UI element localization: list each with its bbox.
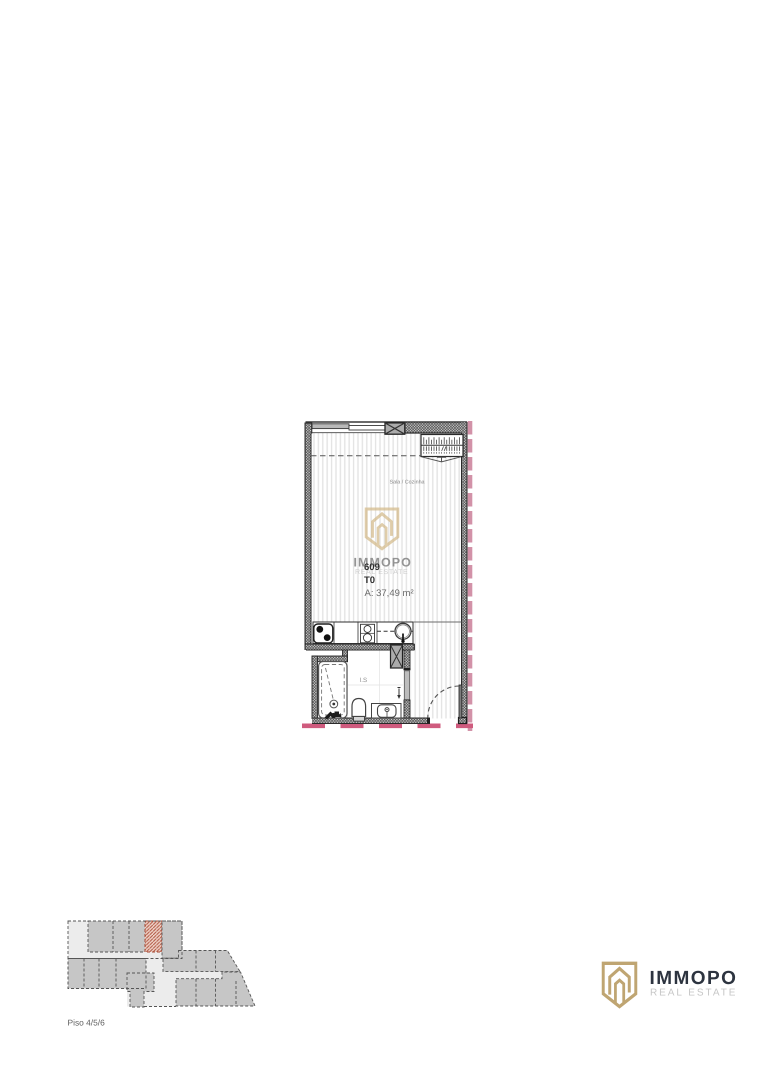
svg-text:IMMOPO: IMMOPO bbox=[354, 556, 412, 570]
svg-text:Sala / Cozinha: Sala / Cozinha bbox=[390, 480, 425, 486]
svg-text:609: 609 bbox=[364, 562, 380, 573]
svg-text:Piso 4/5/6: Piso 4/5/6 bbox=[68, 1018, 106, 1028]
svg-text:IMMOPO: IMMOPO bbox=[650, 968, 738, 989]
svg-text:REAL ESTATE: REAL ESTATE bbox=[650, 987, 737, 998]
svg-text:T0: T0 bbox=[364, 575, 375, 586]
svg-text:I.S: I.S bbox=[360, 677, 368, 684]
svg-text:A: 37,49 m²: A: 37,49 m² bbox=[365, 588, 414, 599]
svg-text:REAL ESTATE: REAL ESTATE bbox=[355, 569, 408, 576]
